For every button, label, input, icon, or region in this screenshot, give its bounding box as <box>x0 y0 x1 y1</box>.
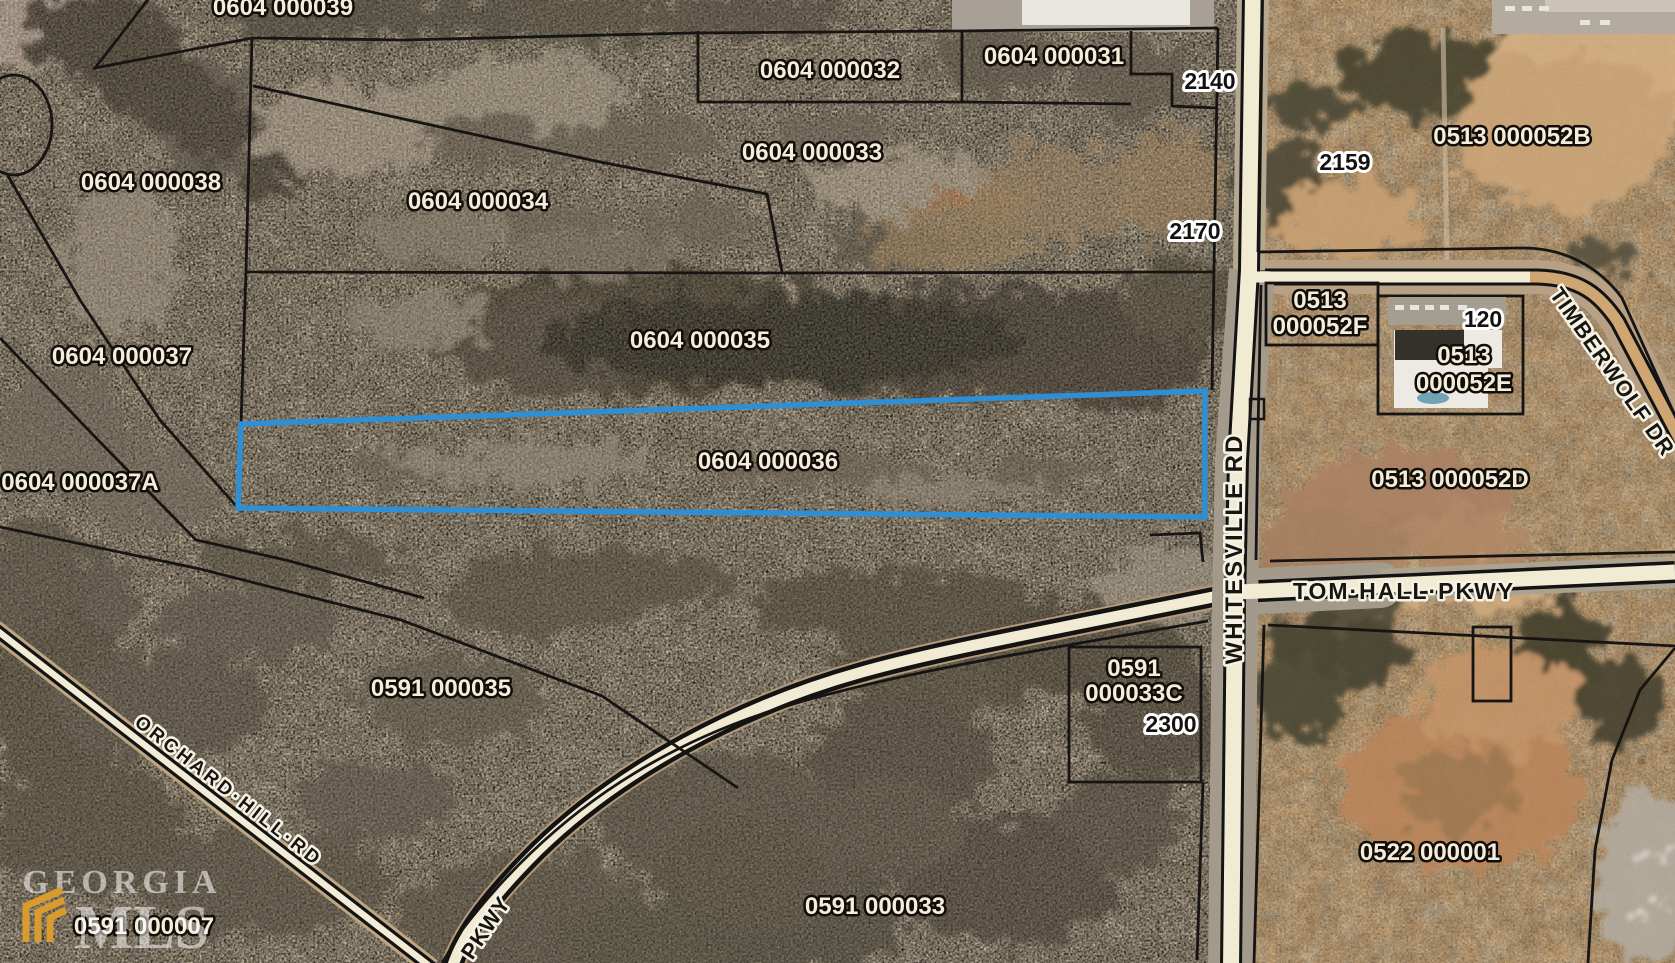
svg-text:0513 000052D: 0513 000052D <box>1371 466 1528 493</box>
svg-text:2140: 2140 <box>1184 68 1235 94</box>
svg-text:0604 000037A: 0604 000037A <box>1 469 158 496</box>
svg-text:2300: 2300 <box>1145 711 1196 737</box>
svg-text:0591 000033: 0591 000033 <box>805 893 945 920</box>
svg-text:TOM·HALL·PKWY: TOM·HALL·PKWY <box>1293 578 1515 604</box>
svg-text:MLS: MLS <box>75 894 209 962</box>
svg-text:0604 000032: 0604 000032 <box>760 57 900 84</box>
svg-text:120: 120 <box>1464 306 1502 332</box>
svg-text:0604 000033: 0604 000033 <box>742 139 882 166</box>
svg-text:0513 000052B: 0513 000052B <box>1433 123 1590 150</box>
svg-text:WHITESVILLE RD: WHITESVILLE RD <box>1221 434 1248 665</box>
svg-text:0522 000001: 0522 000001 <box>1360 839 1500 866</box>
svg-text:000052F: 000052F <box>1273 313 1368 340</box>
svg-text:2159: 2159 <box>1319 149 1370 175</box>
svg-text:0513: 0513 <box>1437 342 1490 369</box>
svg-text:0604 000031: 0604 000031 <box>984 43 1124 70</box>
svg-text:0513: 0513 <box>1293 287 1346 314</box>
svg-text:0604 000039: 0604 000039 <box>213 0 353 21</box>
svg-text:000052E: 000052E <box>1416 370 1512 397</box>
svg-text:0604 000034: 0604 000034 <box>408 188 549 215</box>
svg-text:0604 000036: 0604 000036 <box>698 448 838 475</box>
svg-text:000033C: 000033C <box>1085 680 1182 707</box>
svg-text:0604 000038: 0604 000038 <box>81 169 221 196</box>
svg-text:0604 000035: 0604 000035 <box>630 327 770 354</box>
svg-text:0604 000037: 0604 000037 <box>52 343 192 370</box>
svg-text:0591: 0591 <box>1107 655 1160 682</box>
svg-text:0591 000035: 0591 000035 <box>371 675 511 702</box>
svg-text:2170: 2170 <box>1169 218 1220 244</box>
